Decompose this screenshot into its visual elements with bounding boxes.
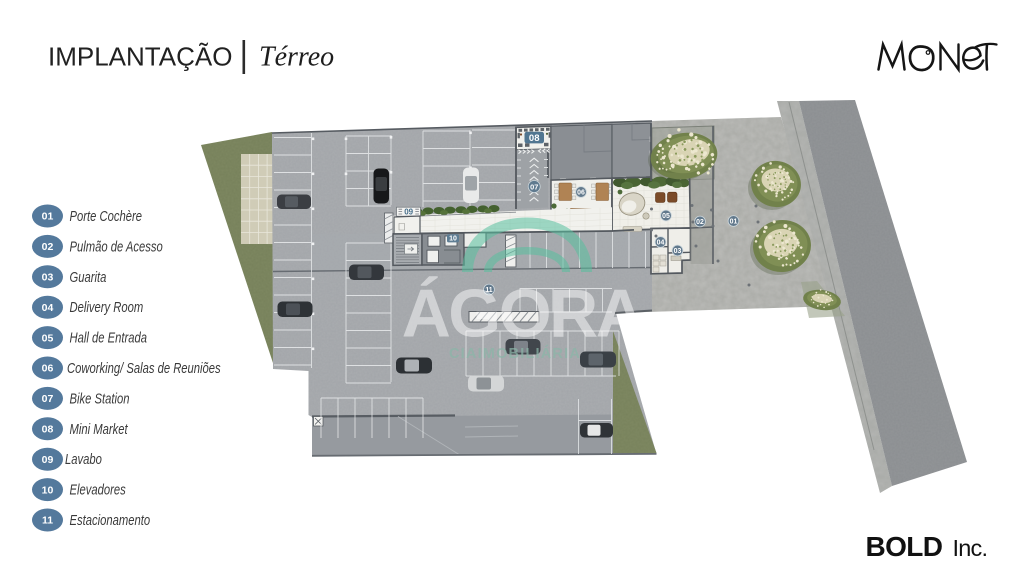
svg-text:Mini Market: Mini Market	[70, 420, 129, 437]
svg-text:Elevadores: Elevadores	[70, 481, 127, 498]
svg-text:10: 10	[42, 484, 54, 496]
svg-text:03: 03	[42, 272, 54, 284]
svg-text:Estacionamento: Estacionamento	[70, 512, 151, 529]
svg-text:09: 09	[42, 454, 54, 466]
svg-text:Guarita: Guarita	[70, 268, 107, 285]
svg-text:06: 06	[577, 190, 585, 197]
svg-text:Hall de Entrada: Hall de Entrada	[70, 329, 147, 346]
svg-text:08: 08	[529, 133, 540, 144]
svg-text:04: 04	[42, 302, 54, 314]
svg-text:ÁGORA: ÁGORA	[402, 276, 644, 352]
svg-text:Lavabo: Lavabo	[65, 451, 102, 468]
svg-text:01: 01	[730, 219, 738, 226]
svg-text:11: 11	[42, 515, 53, 527]
svg-text:Delivery Room: Delivery Room	[70, 299, 144, 316]
svg-text:01: 01	[42, 211, 54, 223]
svg-text:02: 02	[696, 219, 704, 226]
svg-text:03: 03	[674, 248, 682, 255]
svg-text:09: 09	[404, 208, 413, 217]
svg-text:Inc.: Inc.	[953, 535, 988, 561]
svg-text:08: 08	[42, 424, 54, 436]
svg-text:Térreo: Térreo	[259, 41, 334, 72]
svg-text:Coworking/ Salas de Reuniões: Coworking/ Salas de Reuniões	[67, 360, 221, 377]
svg-text:07: 07	[42, 393, 54, 405]
svg-text:IMPLANTAÇÃO: IMPLANTAÇÃO	[48, 41, 232, 71]
svg-text:04: 04	[657, 240, 665, 247]
svg-text:Bike Station: Bike Station	[70, 390, 130, 407]
svg-text:CIAIMOBILIÁRIA: CIAIMOBILIÁRIA	[449, 345, 581, 362]
svg-text:05: 05	[42, 332, 54, 344]
svg-text:07: 07	[530, 182, 538, 191]
svg-text:Porte Cochère: Porte Cochère	[70, 208, 142, 225]
svg-text:02: 02	[42, 241, 54, 253]
svg-text:05: 05	[662, 213, 670, 220]
svg-text:10: 10	[449, 236, 457, 243]
svg-text:06: 06	[42, 363, 54, 375]
svg-text:BOLD: BOLD	[866, 531, 943, 562]
svg-text:Pulmão de Acesso: Pulmão de Acesso	[70, 238, 163, 255]
